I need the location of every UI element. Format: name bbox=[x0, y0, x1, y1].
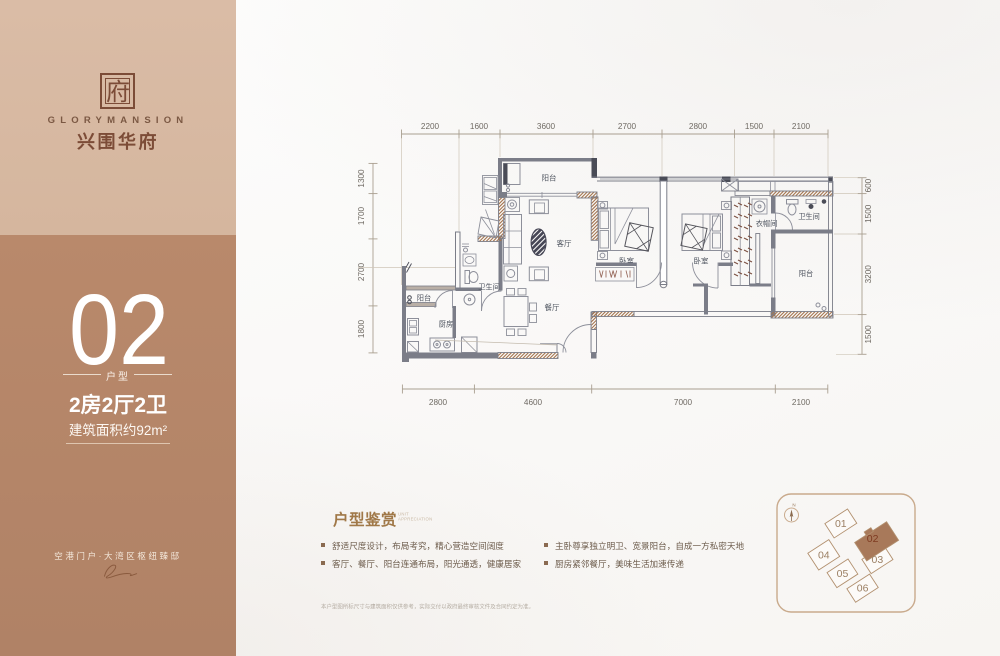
svg-text:N: N bbox=[792, 503, 795, 508]
svg-text:餐厅: 餐厅 bbox=[545, 303, 560, 312]
svg-text:1700: 1700 bbox=[357, 206, 366, 225]
svg-text:2800: 2800 bbox=[429, 398, 448, 407]
svg-text:1800: 1800 bbox=[357, 319, 366, 338]
svg-text:1500: 1500 bbox=[745, 122, 764, 131]
svg-text:2700: 2700 bbox=[357, 262, 366, 281]
svg-text:2700: 2700 bbox=[618, 122, 637, 131]
svg-text:3200: 3200 bbox=[864, 265, 873, 284]
svg-text:厨房: 厨房 bbox=[439, 320, 453, 329]
svg-text:2800: 2800 bbox=[689, 122, 708, 131]
svg-text:04: 04 bbox=[818, 549, 830, 561]
svg-text:1500: 1500 bbox=[864, 325, 873, 344]
svg-text:02: 02 bbox=[867, 533, 879, 545]
svg-text:卧室: 卧室 bbox=[694, 256, 709, 266]
svg-text:阳台: 阳台 bbox=[417, 294, 431, 303]
svg-text:1600: 1600 bbox=[470, 122, 489, 131]
svg-text:2100: 2100 bbox=[792, 122, 811, 131]
svg-text:05: 05 bbox=[837, 568, 849, 580]
svg-text:2200: 2200 bbox=[421, 122, 440, 131]
svg-text:3600: 3600 bbox=[537, 122, 556, 131]
svg-text:1500: 1500 bbox=[864, 204, 873, 223]
svg-text:阳台: 阳台 bbox=[542, 173, 557, 183]
svg-text:7000: 7000 bbox=[674, 398, 693, 407]
svg-text:卫生间: 卫生间 bbox=[478, 283, 500, 292]
svg-text:01: 01 bbox=[835, 518, 847, 530]
svg-text:06: 06 bbox=[857, 583, 869, 595]
svg-text:卫生间: 卫生间 bbox=[798, 212, 820, 221]
svg-text:600: 600 bbox=[864, 178, 873, 192]
svg-text:1300: 1300 bbox=[357, 169, 366, 188]
svg-text:衣帽间: 衣帽间 bbox=[756, 219, 778, 228]
svg-text:2100: 2100 bbox=[792, 398, 811, 407]
svg-text:4600: 4600 bbox=[524, 398, 543, 407]
svg-text:阳台: 阳台 bbox=[799, 269, 813, 278]
svg-text:客厅: 客厅 bbox=[557, 238, 572, 248]
svg-text:03: 03 bbox=[872, 554, 884, 566]
